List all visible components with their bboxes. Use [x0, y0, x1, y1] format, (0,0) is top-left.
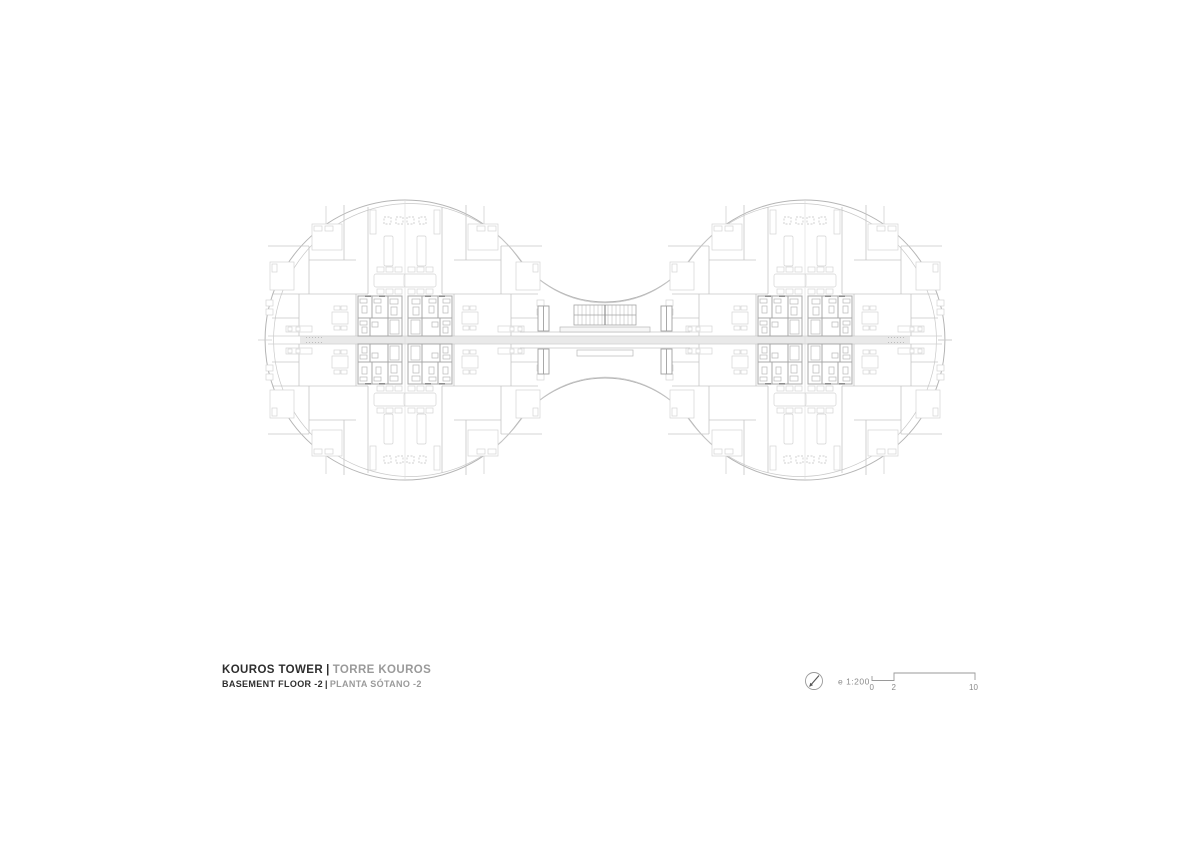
floor-plan-svg — [0, 0, 1200, 849]
scale-tick-10: 10 — [969, 683, 978, 692]
title-block: KOUROS TOWER|TORRE KOUROS BASEMENT FLOOR… — [222, 663, 431, 691]
project-title: KOUROS TOWER|TORRE KOUROS — [222, 663, 431, 677]
north-arrow-icon — [806, 673, 823, 690]
graphic-scale-bar: 0 2 10 — [870, 673, 979, 692]
title-separator: | — [323, 664, 333, 676]
floor-plan — [0, 0, 1200, 849]
scale-area: e 1:200 0 2 10 — [798, 665, 998, 697]
project-title-en: KOUROS TOWER — [222, 664, 323, 676]
sheet-subtitle-en: BASEMENT FLOOR -2 — [222, 679, 323, 689]
drawing-sheet: KOUROS TOWER|TORRE KOUROS BASEMENT FLOOR… — [0, 0, 1200, 849]
scale-tick-2: 2 — [892, 683, 897, 692]
scale-label: e 1:200 — [838, 677, 870, 687]
subtitle-separator: | — [323, 679, 330, 689]
sheet-subtitle: BASEMENT FLOOR -2|PLANTA SÓTANO -2 — [222, 679, 431, 690]
sheet-subtitle-es: PLANTA SÓTANO -2 — [330, 679, 422, 689]
central-corridor-band — [268, 336, 942, 344]
scale-tick-0: 0 — [870, 683, 875, 692]
project-title-es: TORRE KOUROS — [333, 664, 432, 676]
